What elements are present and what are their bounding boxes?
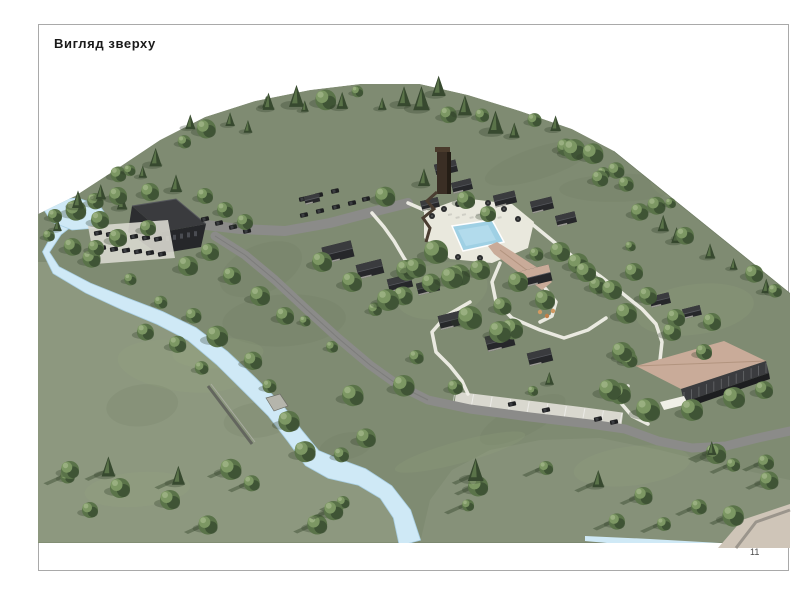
site-render (0, 0, 800, 600)
playground (551, 309, 555, 313)
page-number: 11 (750, 547, 759, 557)
page-title: Вигляд зверху (54, 36, 156, 51)
conifer-tree (180, 114, 196, 131)
playground (538, 310, 542, 314)
playground (545, 314, 549, 318)
slide-page: Вигляд зверху 11 (0, 0, 800, 600)
